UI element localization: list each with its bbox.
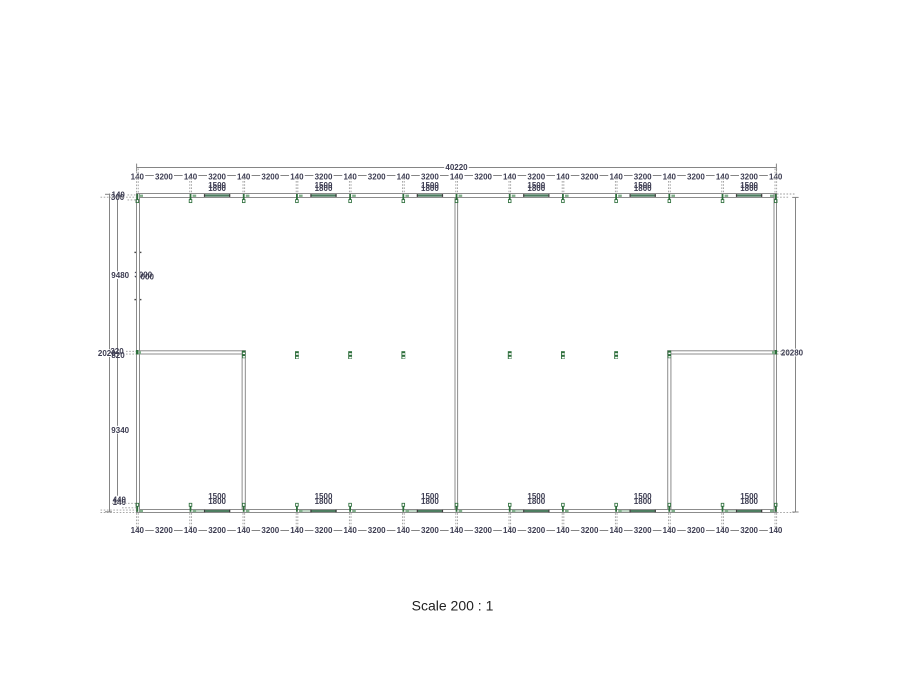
- svg-text:140: 140: [769, 526, 783, 535]
- svg-text:3200: 3200: [634, 526, 652, 535]
- svg-text:140: 140: [343, 172, 357, 181]
- svg-text:140: 140: [556, 172, 570, 181]
- svg-text:3200: 3200: [527, 526, 545, 535]
- svg-text:140: 140: [609, 172, 623, 181]
- svg-text:1800: 1800: [634, 497, 652, 506]
- svg-text:1800: 1800: [634, 184, 652, 193]
- svg-text:1800: 1800: [315, 184, 333, 193]
- svg-text:3200: 3200: [315, 526, 333, 535]
- svg-text:140: 140: [769, 172, 783, 181]
- svg-text:140: 140: [397, 526, 411, 535]
- svg-text:140: 140: [290, 172, 304, 181]
- svg-text:3200: 3200: [155, 172, 173, 181]
- svg-text:3200: 3200: [421, 526, 439, 535]
- svg-text:140: 140: [131, 526, 145, 535]
- svg-text:1800: 1800: [740, 184, 758, 193]
- svg-text:3200: 3200: [687, 172, 705, 181]
- svg-text:Scale 200 : 1: Scale 200 : 1: [412, 598, 494, 614]
- svg-text:9340: 9340: [111, 426, 129, 435]
- svg-text:9480: 9480: [111, 271, 129, 280]
- svg-text:140: 140: [290, 526, 304, 535]
- svg-text:140: 140: [237, 526, 251, 535]
- svg-text:820: 820: [111, 351, 125, 360]
- svg-text:1800: 1800: [208, 184, 226, 193]
- svg-text:140: 140: [397, 172, 411, 181]
- svg-text:40220: 40220: [445, 163, 468, 172]
- svg-text:1800: 1800: [315, 497, 333, 506]
- svg-text:140: 140: [609, 526, 623, 535]
- svg-text:140: 140: [450, 172, 464, 181]
- svg-text:1800: 1800: [421, 184, 439, 193]
- svg-text:3200: 3200: [581, 526, 599, 535]
- svg-text:140: 140: [556, 526, 570, 535]
- svg-text:140: 140: [716, 172, 730, 181]
- svg-text:3200: 3200: [474, 172, 492, 181]
- svg-text:3200: 3200: [368, 526, 386, 535]
- svg-text:1800: 1800: [527, 184, 545, 193]
- svg-text:3200: 3200: [261, 526, 279, 535]
- svg-text:140: 140: [113, 498, 127, 507]
- svg-text:1800: 1800: [527, 497, 545, 506]
- svg-text:140: 140: [503, 526, 517, 535]
- svg-text:3200: 3200: [474, 526, 492, 535]
- svg-text:140: 140: [184, 172, 198, 181]
- svg-text:3200: 3200: [208, 526, 226, 535]
- svg-text:3200: 3200: [740, 526, 758, 535]
- svg-text:140: 140: [663, 526, 677, 535]
- svg-text:20280: 20280: [781, 349, 804, 358]
- svg-text:140: 140: [663, 172, 677, 181]
- svg-text:140: 140: [237, 172, 251, 181]
- svg-text:3200: 3200: [368, 172, 386, 181]
- svg-text:3200: 3200: [687, 526, 705, 535]
- svg-text:3200: 3200: [261, 172, 279, 181]
- svg-text:3200: 3200: [581, 172, 599, 181]
- svg-text:140: 140: [450, 526, 464, 535]
- svg-text:140: 140: [716, 526, 730, 535]
- svg-text:1800: 1800: [421, 497, 439, 506]
- svg-text:1800: 1800: [740, 497, 758, 506]
- svg-text:140: 140: [343, 526, 357, 535]
- svg-text:140: 140: [503, 172, 517, 181]
- svg-text:1800: 1800: [208, 497, 226, 506]
- svg-text:3200: 3200: [155, 526, 173, 535]
- svg-text:140: 140: [184, 526, 198, 535]
- svg-text:140: 140: [131, 172, 145, 181]
